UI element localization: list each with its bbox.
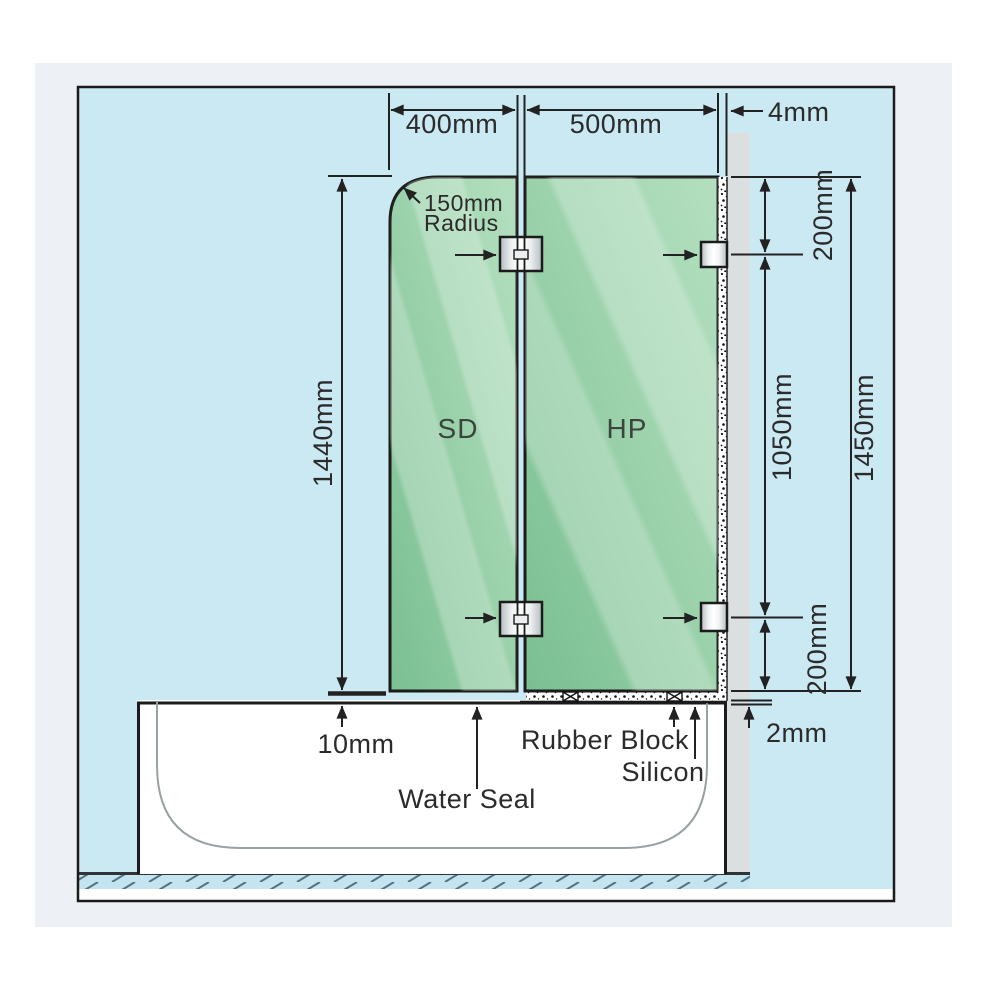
sd-panel-label: SD (438, 413, 479, 444)
dim-hp-height-label: 1450mm (849, 374, 879, 482)
dim-sd-bottom-gap-label: 10mm (317, 729, 394, 759)
hinge-bottom (500, 602, 542, 636)
bracket-bottom (701, 603, 727, 631)
dim-hp-width-label: 500mm (570, 109, 663, 139)
dim-wall-gap-label: 4mm (768, 97, 830, 127)
dim-sd-width-label: 400mm (406, 109, 499, 139)
rubber-block-right (667, 692, 682, 701)
silicon-label: Silicon (621, 757, 704, 787)
floor-base-strip (78, 889, 894, 901)
dim-tub-gap-label: 2mm (766, 718, 828, 748)
glass-panel-sd: SD (390, 177, 517, 691)
shower-screen-installation-diagram: SD HP (0, 0, 1000, 1000)
dim-bottom-bracket-offset-label: 200mm (802, 603, 832, 696)
dim-bracket-span-label: 1050mm (767, 373, 797, 481)
bracket-top (701, 242, 727, 267)
dim-sd-height-label: 1440mm (308, 379, 338, 487)
wall (727, 133, 750, 874)
rubber-block-label: Rubber Block (521, 725, 689, 755)
floor-hatch-lines (78, 875, 750, 889)
radius-word-label: Radius (424, 210, 499, 236)
rubber-block-left (563, 692, 578, 701)
hp-panel-label: HP (607, 413, 648, 444)
water-seal-label: Water Seal (398, 784, 536, 814)
dim-top-bracket-offset-label: 200mm (808, 169, 838, 262)
hinge-top (500, 237, 542, 271)
silicon-strip-bottom (526, 693, 727, 702)
